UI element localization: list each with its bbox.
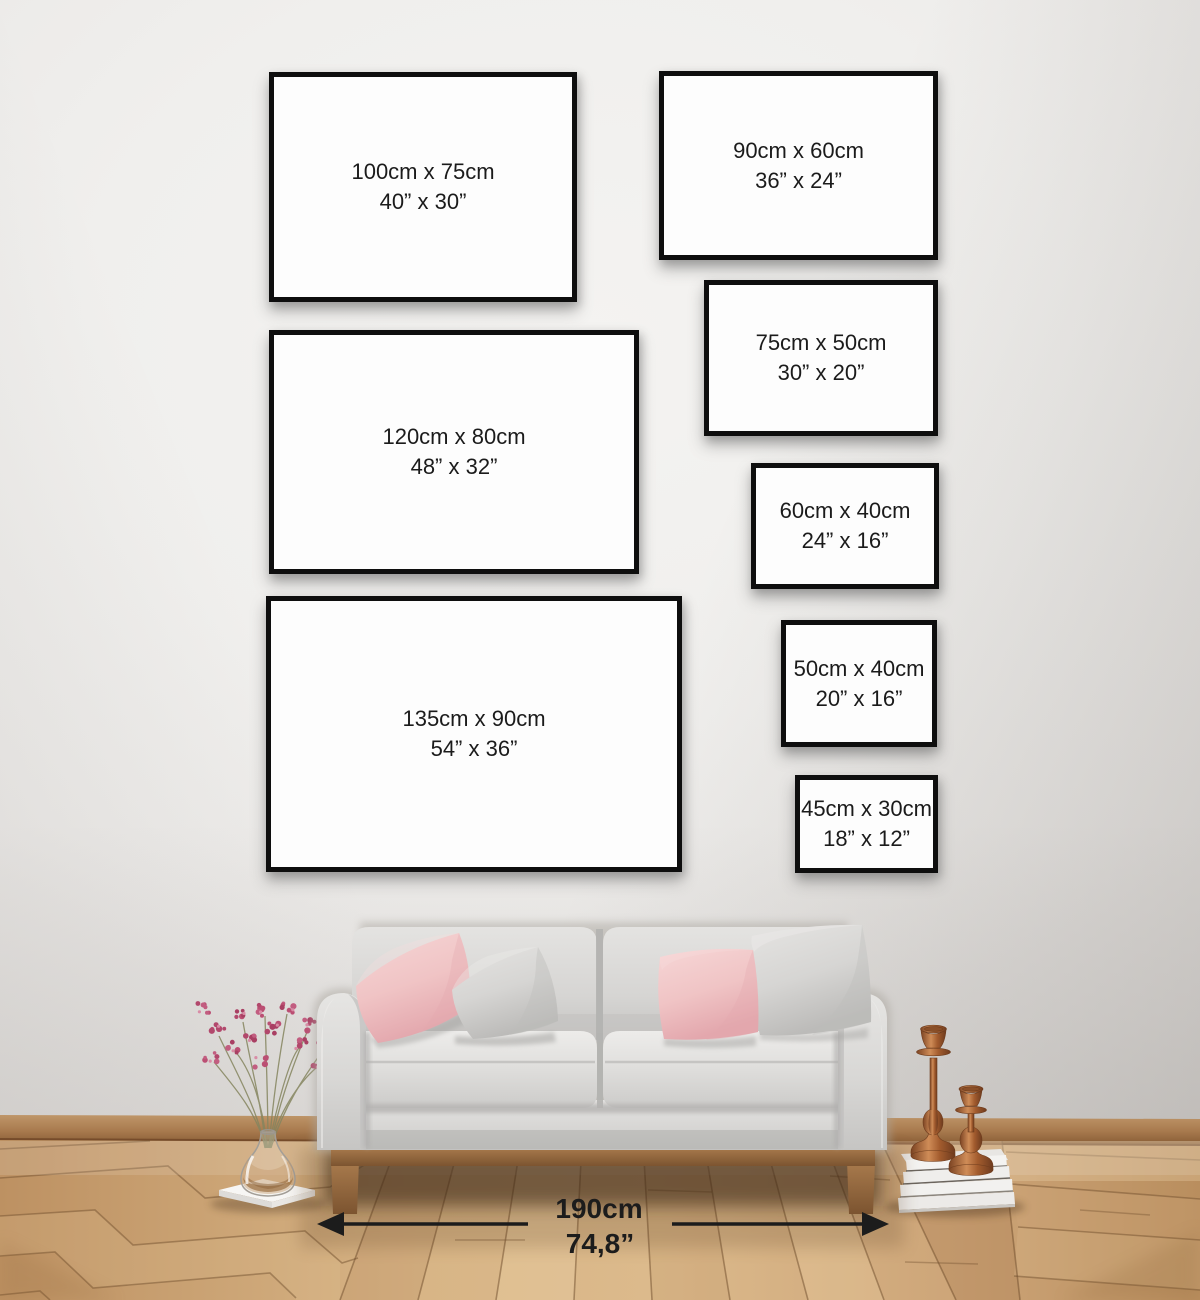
svg-text:74,8”: 74,8” <box>566 1228 635 1259</box>
svg-text:190cm: 190cm <box>555 1193 642 1224</box>
